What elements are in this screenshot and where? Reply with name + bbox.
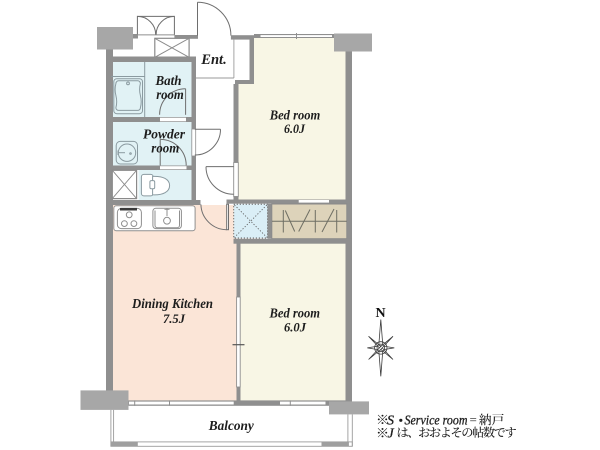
svg-text:Powder: Powder bbox=[143, 126, 186, 141]
svg-text:7.5J: 7.5J bbox=[163, 312, 186, 326]
svg-text:Service room: Service room bbox=[405, 412, 468, 427]
svg-text:Bath: Bath bbox=[155, 73, 182, 88]
svg-text:Dining Kitchen: Dining Kitchen bbox=[131, 296, 213, 311]
svg-text:room: room bbox=[156, 87, 184, 102]
svg-text:Ent.: Ent. bbox=[200, 52, 227, 68]
svg-text:6.0J: 6.0J bbox=[284, 320, 306, 335]
svg-text:room: room bbox=[151, 141, 179, 156]
svg-text:Balcony: Balcony bbox=[208, 419, 255, 434]
svg-text:6.0J: 6.0J bbox=[284, 121, 305, 136]
svg-text:=: = bbox=[470, 412, 477, 427]
svg-text:J: J bbox=[388, 427, 395, 442]
svg-text:Bed room: Bed room bbox=[269, 305, 320, 320]
svg-text:N: N bbox=[375, 306, 385, 321]
